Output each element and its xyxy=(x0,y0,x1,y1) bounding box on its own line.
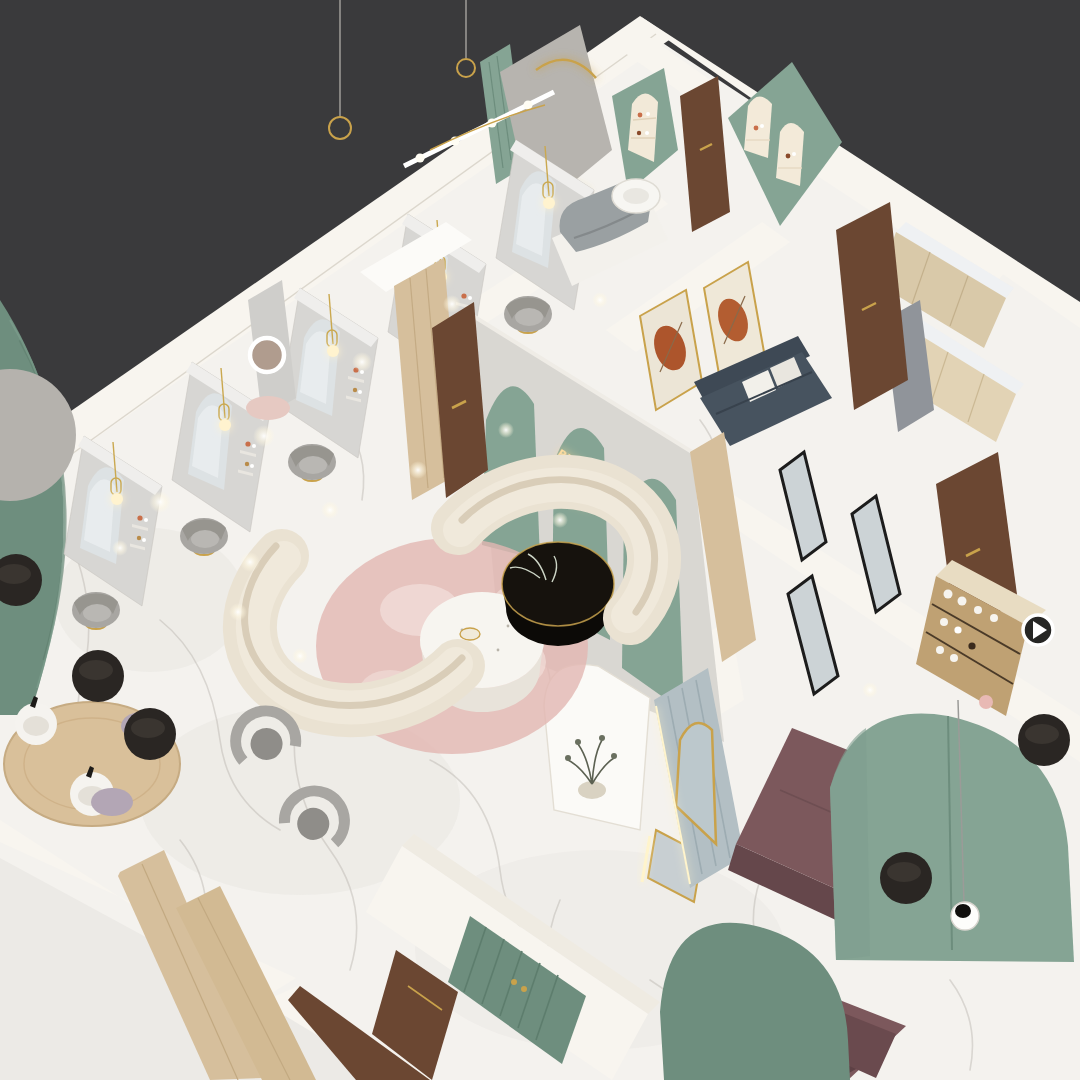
round-mirror-ornament xyxy=(1023,615,1053,645)
render-canvas: BYOUGLOW girl xyxy=(0,0,1080,1080)
pouf xyxy=(124,708,176,760)
pouf xyxy=(72,650,124,702)
pouf xyxy=(880,852,932,904)
cushion xyxy=(91,788,133,816)
salon-floorplan-render: BYOUGLOW girl xyxy=(0,0,1080,1080)
pouf xyxy=(1018,714,1070,766)
black-coffee-table xyxy=(502,542,614,646)
